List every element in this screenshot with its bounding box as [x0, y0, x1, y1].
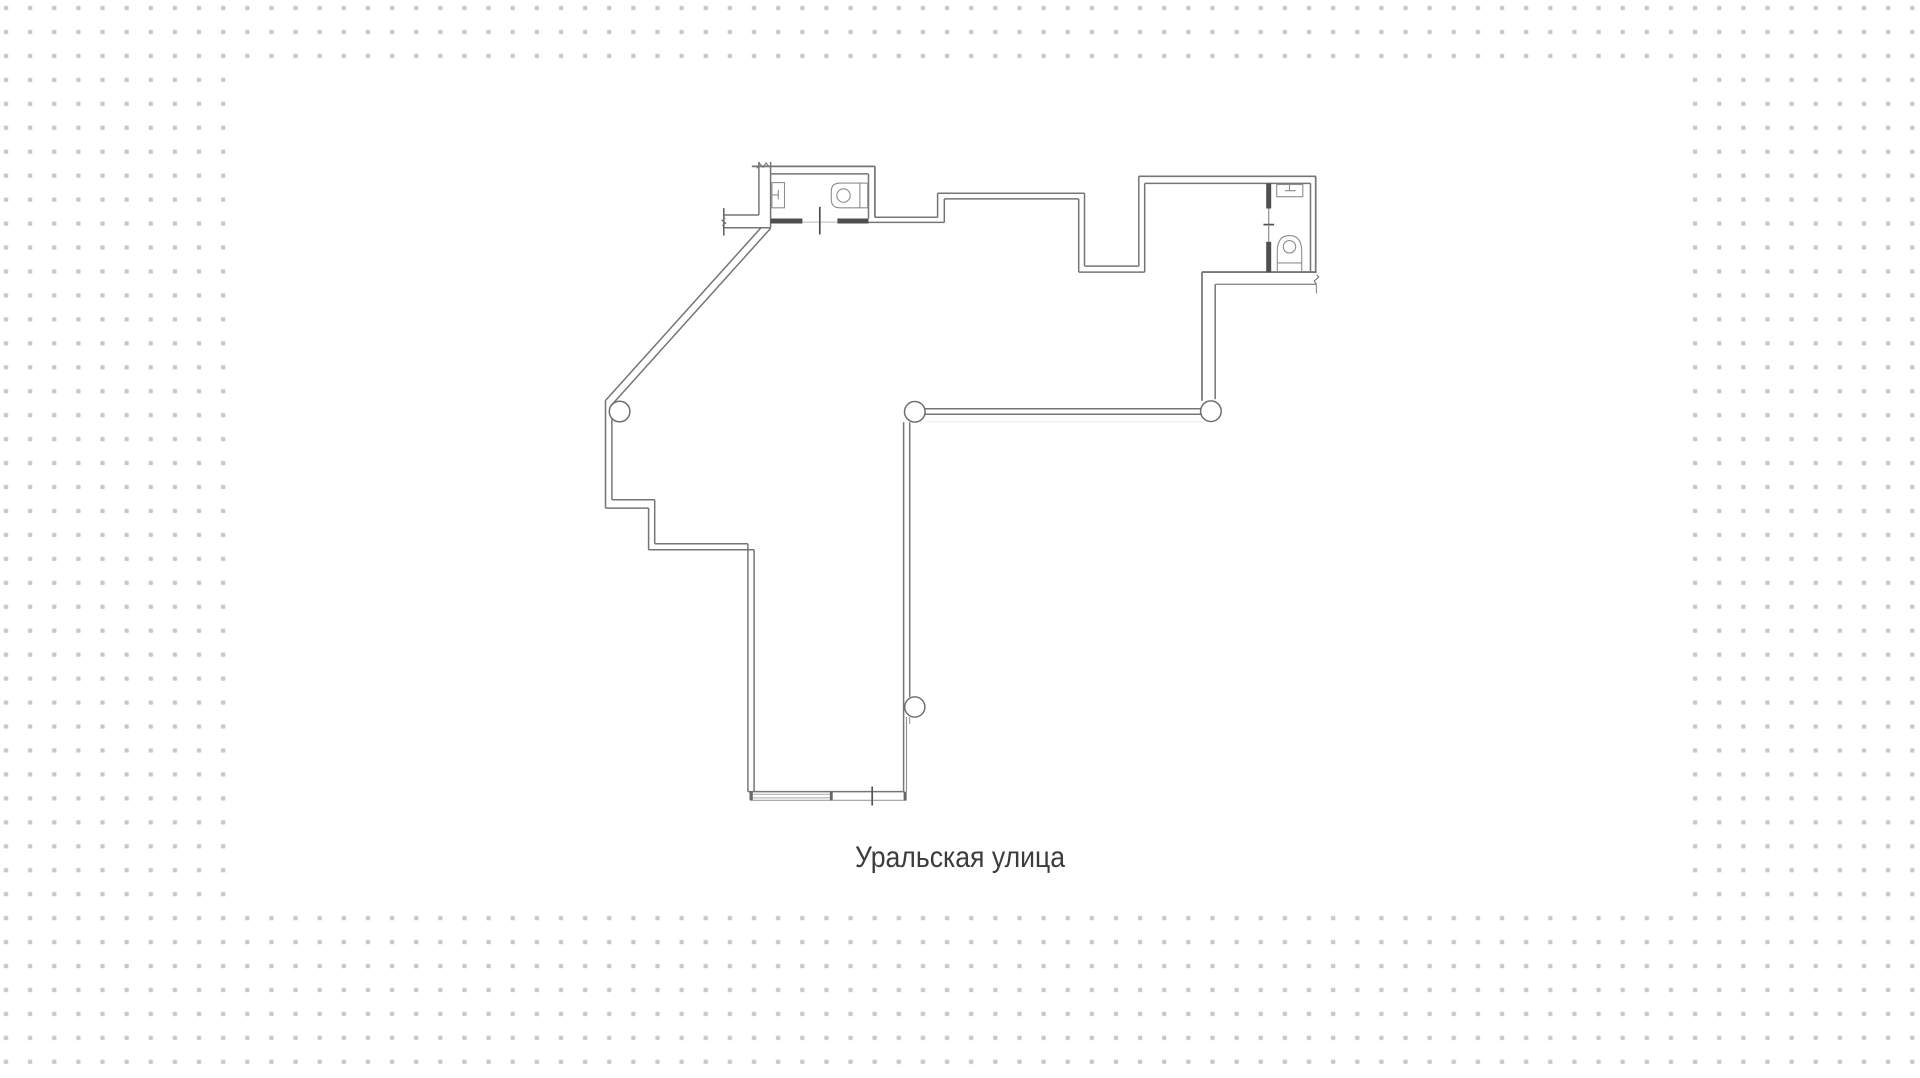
svg-text:Уральская улица: Уральская улица	[855, 841, 1065, 874]
